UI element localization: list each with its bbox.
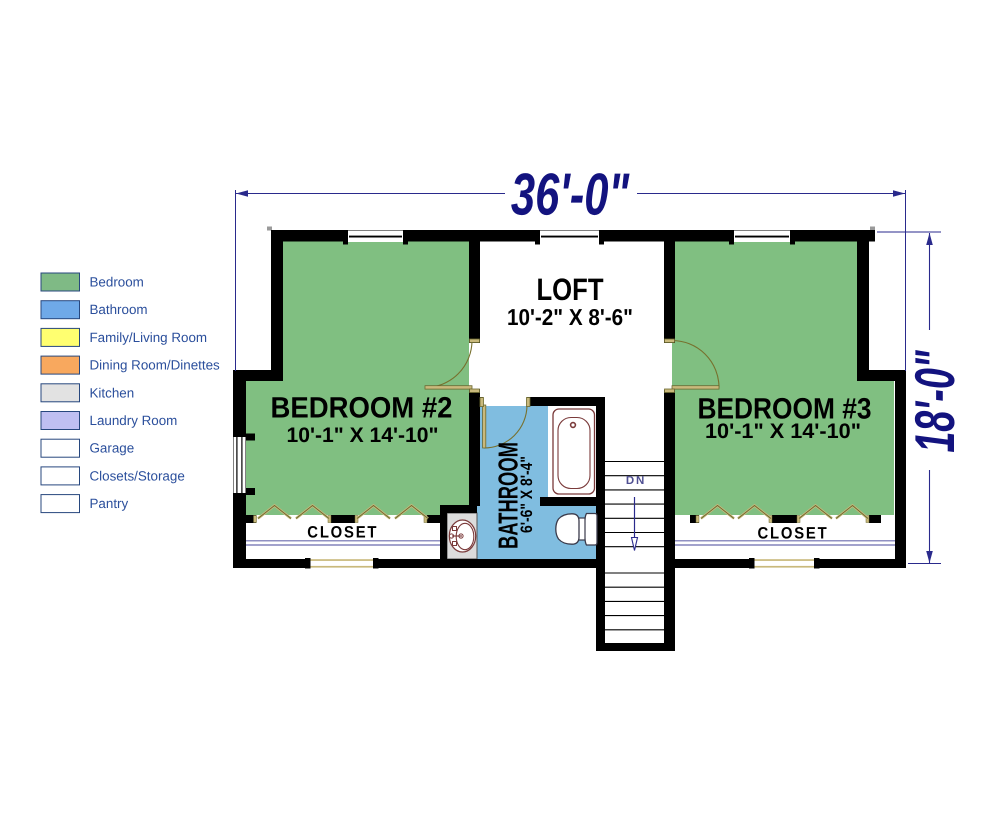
svg-text:6'-6" X 8'-4": 6'-6" X 8'-4" (518, 456, 536, 533)
svg-text:CLOSET: CLOSET (758, 525, 829, 543)
svg-text:Family/Living Room: Family/Living Room (90, 330, 208, 345)
svg-text:Closets/Storage: Closets/Storage (90, 468, 185, 483)
svg-text:18'-0": 18'-0" (903, 349, 966, 452)
svg-text:Kitchen: Kitchen (90, 385, 135, 400)
svg-text:Pantry: Pantry (90, 496, 129, 511)
svg-text:DN: DN (626, 475, 646, 487)
svg-text:36'-0": 36'-0" (511, 160, 630, 227)
svg-text:10'-1" X 14'-10": 10'-1" X 14'-10" (287, 424, 439, 447)
svg-text:10'-1" X 14'-10": 10'-1" X 14'-10" (705, 420, 861, 443)
svg-text:Laundry Room: Laundry Room (90, 413, 178, 428)
svg-text:LOFT: LOFT (537, 272, 604, 307)
svg-text:Bedroom: Bedroom (90, 275, 144, 290)
svg-text:CLOSET: CLOSET (307, 524, 378, 542)
svg-text:Bathroom: Bathroom (90, 302, 148, 317)
svg-text:Garage: Garage (90, 441, 135, 456)
svg-text:BEDROOM #2: BEDROOM #2 (271, 392, 453, 425)
svg-text:Dining Room/Dinettes: Dining Room/Dinettes (90, 358, 221, 373)
svg-text:10'-2" X 8'-6": 10'-2" X 8'-6" (507, 304, 633, 330)
